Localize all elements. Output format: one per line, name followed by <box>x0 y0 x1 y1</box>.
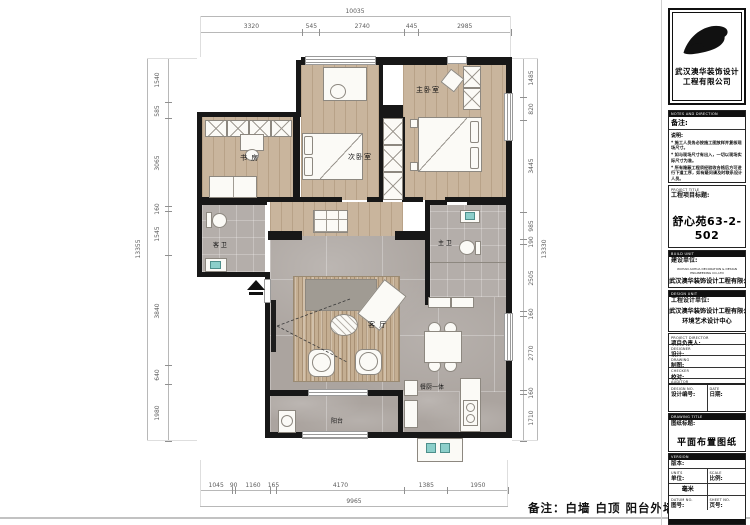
dimension-line <box>507 460 508 506</box>
master-wardrobe <box>463 88 481 110</box>
dimension-line <box>165 118 172 119</box>
row-drawing: DRAWING 制图: <box>669 356 745 367</box>
dimension-line <box>520 316 527 317</box>
bay-window-second-bedroom <box>305 56 376 65</box>
ac-unit <box>440 443 450 453</box>
drawing-element: 单位: <box>669 475 707 483</box>
dimension-line <box>512 58 538 59</box>
dimension-line <box>537 58 538 441</box>
dimension-value: 9965 <box>338 498 370 506</box>
room-label-dining: 餐厨一体 <box>420 382 444 391</box>
datum-no-cell: DATUM NO. 图号: <box>669 496 708 510</box>
dimension-value: 4170 <box>326 482 354 490</box>
bed-blanket <box>419 118 467 171</box>
units-value-row: 毫米 <box>669 484 745 496</box>
wall <box>197 112 301 117</box>
dimension-line <box>165 211 172 212</box>
dimension-value: 3445 <box>528 151 536 181</box>
note-item: 所有隐蔽工程须经验收合格后方可进行下道工序，如有疑问请及时联系设计人员。 <box>669 165 745 183</box>
notes-subtitle: 说明: <box>669 130 745 140</box>
units-cell: UNITS 单位: <box>669 469 708 483</box>
window-balcony <box>302 431 368 439</box>
dimension-line <box>520 244 527 245</box>
dimension-value: 1485 <box>528 63 536 93</box>
notes-section: NOTES AND DIRECTION 备注: 说明: 施工人员务必按施工图放样… <box>668 110 746 183</box>
scale-cell: SCALE 比例: <box>708 469 746 483</box>
bottom-bar <box>669 519 745 524</box>
units-value: 毫米 <box>669 484 708 495</box>
company-name-line1: 武汉澳华装饰设计 <box>673 67 741 77</box>
wall <box>398 396 403 434</box>
wall <box>382 105 403 118</box>
armchair-cushion <box>312 353 331 372</box>
note-item: 施工人员务必按施工图放样并复核现场尺寸。 <box>669 140 745 152</box>
frame-line <box>0 517 750 519</box>
window-dining <box>504 313 513 361</box>
dimension-line <box>319 29 320 36</box>
designno-date-section: DESIGN NO. 设计编号: DATE 日期: <box>668 384 746 412</box>
design-unit-label: 工程设计单位: <box>669 297 745 305</box>
dimension-line <box>200 460 201 506</box>
bed-pillow <box>304 136 313 155</box>
dimension-value: 445 <box>398 23 426 31</box>
toilet-tank <box>475 241 481 255</box>
dimension-line <box>276 487 277 494</box>
room-label-master-bath: 主 卫 <box>438 238 452 247</box>
row-checker: CHECKER 校对: <box>669 368 745 379</box>
project-title-label: 工程项目标题: <box>669 192 745 200</box>
dimension-value: 2740 <box>348 23 376 31</box>
build-unit-label: 建设单位: <box>669 257 745 265</box>
wall <box>425 200 430 305</box>
design-no-cell: DESIGN NO. 设计编号: <box>669 385 708 411</box>
dimension-value: 190 <box>528 227 536 257</box>
design-unit-name2: 环境艺术设计中心 <box>669 316 745 325</box>
dimension-value: 1385 <box>412 482 440 490</box>
tv-unit <box>271 300 276 352</box>
note-item: 如与现场尺寸有出入，一切以现场实际尺寸为准。 <box>669 152 745 164</box>
study-sofa <box>209 176 257 198</box>
wall <box>467 200 506 205</box>
wall <box>300 197 342 202</box>
coffee-table <box>330 314 358 336</box>
dimension-value: 165 <box>259 482 287 490</box>
nightstand <box>410 162 418 171</box>
dimension-value: 640 <box>154 360 162 390</box>
version-row: 版本: <box>669 460 745 469</box>
toilet-bowl <box>212 213 227 228</box>
dimension-value: 10035 <box>339 8 371 16</box>
row-project-director: PROJECT DIRECTOR 项目负责人: <box>669 334 745 345</box>
dimension-line <box>523 58 524 441</box>
bedroom2-desk <box>323 67 367 101</box>
dimension-line <box>165 206 172 207</box>
dimension-line <box>512 440 538 441</box>
washer-drum <box>281 415 293 427</box>
dimension-line <box>200 32 511 33</box>
room-label-balcony: 阳台 <box>331 416 343 425</box>
title-block-separator <box>661 0 662 525</box>
dimension-value: 2985 <box>451 23 479 31</box>
dimension-line <box>147 440 197 441</box>
drawing-title-value: 平面布置图纸 <box>669 435 745 448</box>
basin <box>210 261 221 269</box>
project-title-section: PROJECT TITLE 工程项目标题: 舒心苑63-2-502 <box>668 185 746 248</box>
dimension-value: 1540 <box>154 65 162 95</box>
dimension-value: 1950 <box>464 482 492 490</box>
dimension-line <box>447 487 448 494</box>
bed-pillow <box>304 157 313 176</box>
dimension-line <box>520 120 527 121</box>
study-cabinet <box>271 120 292 137</box>
dimension-line <box>147 58 148 441</box>
bath-cabinet <box>451 297 474 308</box>
basin <box>465 212 475 220</box>
shower-glass <box>430 262 506 263</box>
burner <box>466 403 475 412</box>
drawing-title-section: DRAWING TITLE 图纸标题: 平面布置图纸 <box>668 413 746 452</box>
nightstand <box>410 119 418 128</box>
datum-sheet-row: DATUM NO. 图号: SHEET NO. 页号: <box>669 496 745 510</box>
entry-arrow <box>247 280 265 290</box>
bath-cabinet <box>428 297 451 308</box>
wall <box>403 197 423 202</box>
room-label-guest-bath: 客 卫 <box>213 240 227 249</box>
dimension-value: 820 <box>528 94 536 124</box>
dimension-value: 160 <box>528 299 536 329</box>
dimension-line <box>520 311 527 312</box>
door-master-bedroom-top <box>447 56 467 64</box>
armchair-cushion <box>359 352 378 371</box>
bedroom2-chair <box>330 84 346 99</box>
dimension-line <box>520 394 527 395</box>
window-master-bedroom <box>504 93 513 141</box>
design-unit-section: DESIGN UNIT 工程设计单位: 武汉澳华装饰设计工程有限公司 环境艺术设… <box>668 290 746 332</box>
dimension-line <box>200 490 508 491</box>
dimension-value: 1710 <box>528 403 536 433</box>
floor-kitchen <box>403 392 506 434</box>
company-logo-icon <box>679 19 735 63</box>
wall <box>395 231 425 240</box>
dimension-value: 13330 <box>541 234 549 264</box>
wall <box>265 390 308 396</box>
burner <box>466 414 475 423</box>
design-unit-name: 武汉澳华装饰设计工程有限公司 <box>669 306 745 315</box>
dimension-line <box>510 16 511 57</box>
room-label-master-bedroom: 主卧室 <box>416 85 440 95</box>
dimension-line <box>200 16 511 17</box>
dimension-line <box>520 390 527 391</box>
build-unit-name: 武汉澳华装饰设计工程有限公司 <box>669 276 745 285</box>
dimension-value: 2770 <box>528 338 536 368</box>
date-cell: DATE 日期: <box>708 385 746 411</box>
units-scale-row: UNITS 单位: SCALE 比例: <box>669 469 745 484</box>
wardrobe <box>383 145 403 172</box>
drawing-element: 日期: <box>708 391 746 399</box>
wardrobe <box>383 172 403 200</box>
company-logo-box: 武汉澳华装饰设计 工程有限公司 <box>668 8 746 105</box>
dimension-line <box>520 97 527 98</box>
dimension-line <box>235 487 236 494</box>
sheet-no-cell: SHEET NO. 页号: <box>708 496 746 510</box>
wall <box>268 231 302 240</box>
dimension-line <box>404 487 405 494</box>
wall <box>367 197 379 202</box>
wall <box>293 117 300 202</box>
dimension-line <box>165 384 172 385</box>
entry-arrow-bar <box>249 292 263 295</box>
dimension-value: 2505 <box>528 263 536 293</box>
drawing-element: 设计编号: <box>669 391 707 399</box>
drawing-element <box>708 484 746 495</box>
dimension-line <box>418 29 419 36</box>
room-label-living: 客 厅 <box>368 320 387 330</box>
dimension-line <box>200 16 201 57</box>
wall <box>197 272 270 277</box>
drawing-element: 比例: <box>708 475 746 483</box>
notes-list: 施工人员务必按施工图放样并复核现场尺寸。如与现场尺寸有出入，一切以现场实际尺寸为… <box>669 140 745 183</box>
drawing-title-label: 图纸标题: <box>669 420 745 428</box>
bed-pillow <box>470 121 479 143</box>
dimension-line <box>147 58 197 59</box>
dimension-value: 3320 <box>237 23 265 31</box>
dimension-value: 1980 <box>154 398 162 428</box>
version-scale-section: VERSION 版本: UNITS 单位: SCALE 比例: 毫米 DATUM… <box>668 453 746 525</box>
dimension-line <box>165 102 172 103</box>
dimension-value: 13355 <box>135 234 143 264</box>
dimension-line <box>165 255 172 256</box>
dimension-line <box>200 506 508 507</box>
dimension-line <box>165 365 172 366</box>
row-designer: DESIGNER 设计: <box>669 345 745 356</box>
notes-label: 备注: <box>669 117 745 130</box>
kitchen-cabinet <box>404 400 418 428</box>
wall <box>425 200 447 205</box>
project-number: 舒心苑63-2-502 <box>669 213 745 242</box>
staff-rows-section: PROJECT DIRECTOR 项目负责人: DESIGNER 设计: DRA… <box>668 333 746 384</box>
build-unit-section: BUILD UNIT 建设单位: WUHAN AOHUA DECORATION … <box>668 250 746 288</box>
master-wardrobe <box>463 66 481 88</box>
kitchen-cabinet <box>404 380 418 396</box>
study-cabinet <box>205 120 227 137</box>
dimension-value: 1545 <box>154 219 162 249</box>
dining-table <box>424 331 462 363</box>
drawing-element: 页号: <box>708 502 746 510</box>
dimension-value: 585 <box>154 96 162 126</box>
ac-unit <box>426 443 436 453</box>
wardrobe <box>383 118 403 145</box>
dimension-line <box>520 212 527 213</box>
wall <box>467 57 506 65</box>
drawing-element: 图号: <box>669 502 707 510</box>
company-name-line2: 工程有限公司 <box>673 77 741 87</box>
dimension-value: 3065 <box>154 148 162 178</box>
wall <box>383 57 447 65</box>
room-label-second-bedroom: 次卧室 <box>348 152 372 162</box>
build-unit-en-name: WUHAN AOHUA DECORATION & DESIGN ENGINEER… <box>669 267 745 275</box>
drawing-element: 版本: <box>669 460 745 468</box>
room-label-study: 书 房 <box>240 153 259 163</box>
toilet-bowl <box>459 240 475 255</box>
wall <box>296 60 301 112</box>
dimension-line <box>520 239 527 240</box>
entry-door-gap <box>264 279 271 303</box>
dimension-value: 3840 <box>154 296 162 326</box>
floor-plan-sheet: 主卧室 次卧室 书 房 客 卫 主 卫 客 厅 餐厨一体 阳台 33205452… <box>0 0 750 525</box>
bed-pillow <box>470 147 479 169</box>
dimension-value: 545 <box>297 23 325 31</box>
shoe-cabinet <box>313 210 348 233</box>
sliding-door-balcony <box>308 389 368 396</box>
